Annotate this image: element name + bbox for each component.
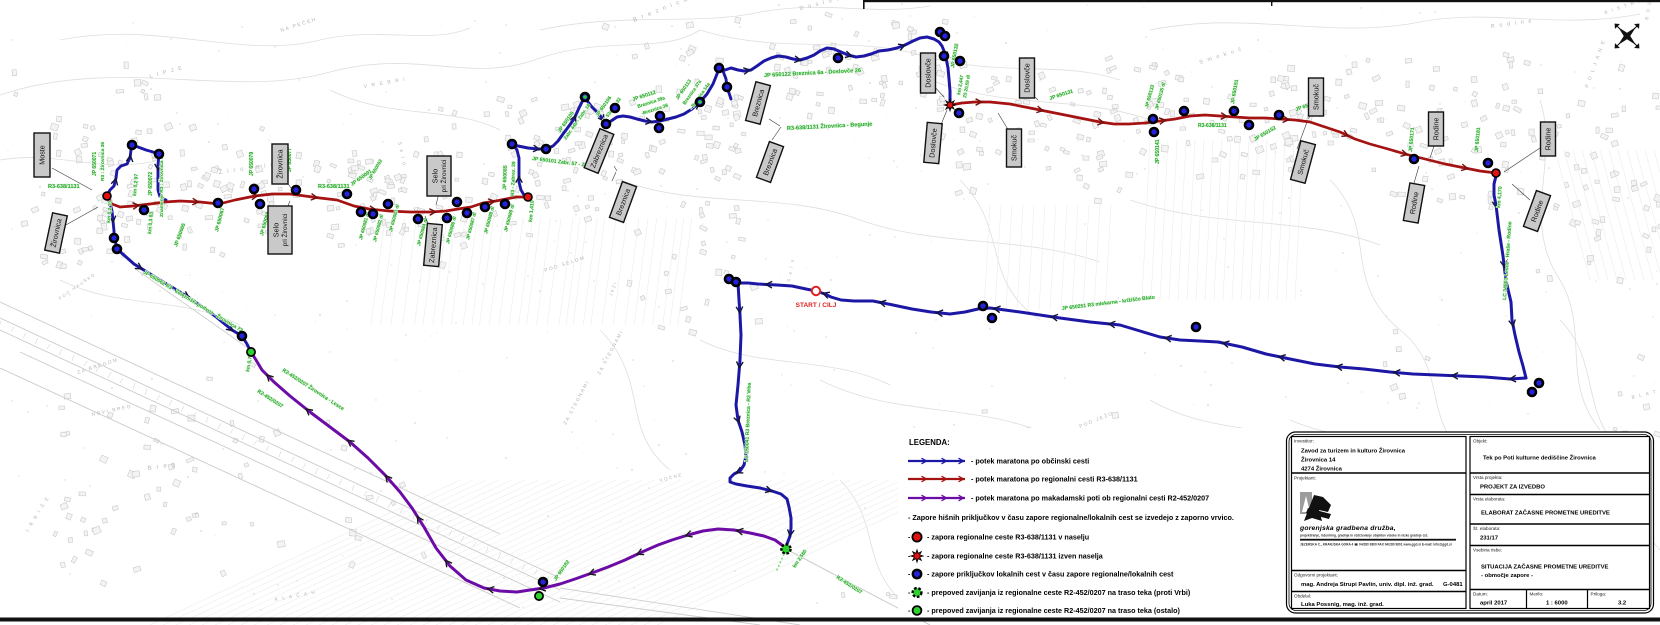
svg-text:4274 Žirovnica: 4274 Žirovnica [1301, 464, 1343, 472]
svg-text:- potek maratona po makadamski: - potek maratona po makadamski poti ob r… [971, 494, 1209, 503]
svg-text:Priloga:: Priloga: [1591, 592, 1607, 597]
svg-text:- Zapore hišnih priključkov v: - Zapore hišnih priključkov v času zapor… [908, 513, 1234, 522]
svg-text:Št. elaborata:: Št. elaborata: [1473, 525, 1500, 531]
svg-text:Vrsta projekta:: Vrsta projekta: [1473, 475, 1502, 480]
svg-text:Zavod za turizem in kulturo Ži: Zavod za turizem in kulturo Žirovnica [1301, 447, 1406, 455]
svg-text:Tek po Poti kulturne dediščine: Tek po Poti kulturne dediščine Žirovnica [1483, 454, 1597, 462]
svg-text:SITUACIJA ZAČASNE PROMETNE URE: SITUACIJA ZAČASNE PROMETNE UREDITVE [1481, 564, 1608, 571]
svg-text:- območje zapore -: - območje zapore - [1481, 573, 1533, 579]
svg-text:Rodine: Rodine [1432, 118, 1441, 141]
svg-text:R3-638/1131: R3-638/1131 [48, 184, 80, 190]
svg-text:R3-638/1131: R3-638/1131 [1198, 123, 1227, 129]
svg-text:- potek maratona po občinski c: - potek maratona po občinski cesti [971, 457, 1089, 466]
svg-text:Vrsta elaborata:: Vrsta elaborata: [1473, 497, 1505, 502]
svg-text:R3-638/1131: R3-638/1131 [318, 184, 350, 190]
svg-text:JP 650085: JP 650085 [502, 165, 509, 190]
svg-text:R3 - Zabrez. 39: R3 - Zabrez. 39 [510, 161, 517, 196]
svg-text:- zapora regionalne ceste R3-6: - zapora regionalne ceste R3-638/1131 iz… [927, 552, 1104, 561]
svg-text:JEZERSKA C., KRANJSKA GORA 4: JEZERSKA C., KRANJSKA GORA 4 ☎ 04/280 98… [1300, 543, 1452, 547]
svg-text:Žirovnica 14: Žirovnica 14 [1301, 456, 1336, 464]
svg-text:- prepoved zavijanja iz region: - prepoved zavijanja iz regionalne ceste… [927, 588, 1191, 597]
svg-text:ELABORAT ZAČASNE PROMETNE URED: ELABORAT ZAČASNE PROMETNE UREDITVE [1481, 510, 1610, 517]
svg-text:projektiranje, inženiring, gra: projektiranje, inženiring, gradnja in vz… [1300, 534, 1428, 538]
svg-text:gorenjska gradbena družba,: gorenjska gradbena družba, [1299, 525, 1396, 532]
svg-text:JP 650071: JP 650071 [92, 152, 98, 176]
svg-text:- zapora regionalne ceste R3-6: - zapora regionalne ceste R3-638/1131 v … [927, 533, 1089, 542]
svg-text:JP 650079: JP 650079 [249, 152, 255, 176]
svg-text:JP 650141: JP 650141 [1155, 139, 1161, 164]
svg-text:Luka Possnig, mag. inž. grad.: Luka Possnig, mag. inž. grad. [1301, 602, 1384, 608]
svg-text:Doslovče: Doslovče [1023, 63, 1032, 93]
svg-text:Doslovče: Doslovče [924, 58, 933, 88]
svg-text:Obdelal:: Obdelal: [1294, 594, 1311, 599]
svg-text:3.2: 3.2 [1618, 601, 1627, 607]
svg-text:Investitor:: Investitor: [1294, 439, 1314, 444]
svg-text:Smokuč: Smokuč [1312, 84, 1321, 110]
svg-text:1 : 6000: 1 : 6000 [1546, 601, 1568, 607]
svg-text:231/17: 231/17 [1480, 536, 1499, 542]
svg-text:- prepoved zavijanja iz region: - prepoved zavijanja iz regionalne ceste… [927, 606, 1180, 615]
svg-text:JP 650072: JP 650072 [148, 172, 154, 196]
svg-text:- potek maratona po regionalni: - potek maratona po regionalni cesti R3-… [971, 475, 1138, 484]
svg-text:PROJEKT ZA IZVEDBO: PROJEKT ZA IZVEDBO [1480, 485, 1545, 491]
svg-text:G-0481: G-0481 [1443, 582, 1463, 588]
svg-text:LEGENDA:: LEGENDA: [909, 438, 950, 447]
svg-text:pri Žirovnici: pri Žirovnici [280, 214, 289, 247]
svg-text:Selo: Selo [431, 169, 440, 183]
svg-text:Selo: Selo [272, 223, 281, 237]
svg-text:mag. Andreja Strupi Pavlin, un: mag. Andreja Strupi Pavlin, univ. dipl. … [1301, 582, 1434, 588]
svg-text:Smokuč: Smokuč [1010, 135, 1019, 161]
svg-text:Projektant:: Projektant: [1294, 476, 1316, 481]
svg-text:- zapore priključkov lokalnih: - zapore priključkov lokalnih cest v čas… [927, 570, 1174, 579]
svg-text:Merilo:: Merilo: [1530, 592, 1544, 597]
svg-text:Objekt:: Objekt: [1473, 439, 1488, 444]
svg-text:START / CILJ: START / CILJ [796, 302, 837, 309]
svg-text:Moste: Moste [38, 145, 47, 165]
svg-text:pri Žirovnici: pri Žirovnici [439, 160, 448, 193]
svg-text:Žirovnica: Žirovnica [276, 149, 285, 178]
svg-text:Vsebina risbe:: Vsebina risbe: [1473, 548, 1502, 553]
svg-text:april 2017: april 2017 [1480, 601, 1508, 607]
svg-text:Datum:: Datum: [1473, 592, 1488, 597]
svg-text:Rodine: Rodine [1544, 128, 1553, 151]
svg-text:Odgovorni projektant:: Odgovorni projektant: [1294, 573, 1338, 578]
